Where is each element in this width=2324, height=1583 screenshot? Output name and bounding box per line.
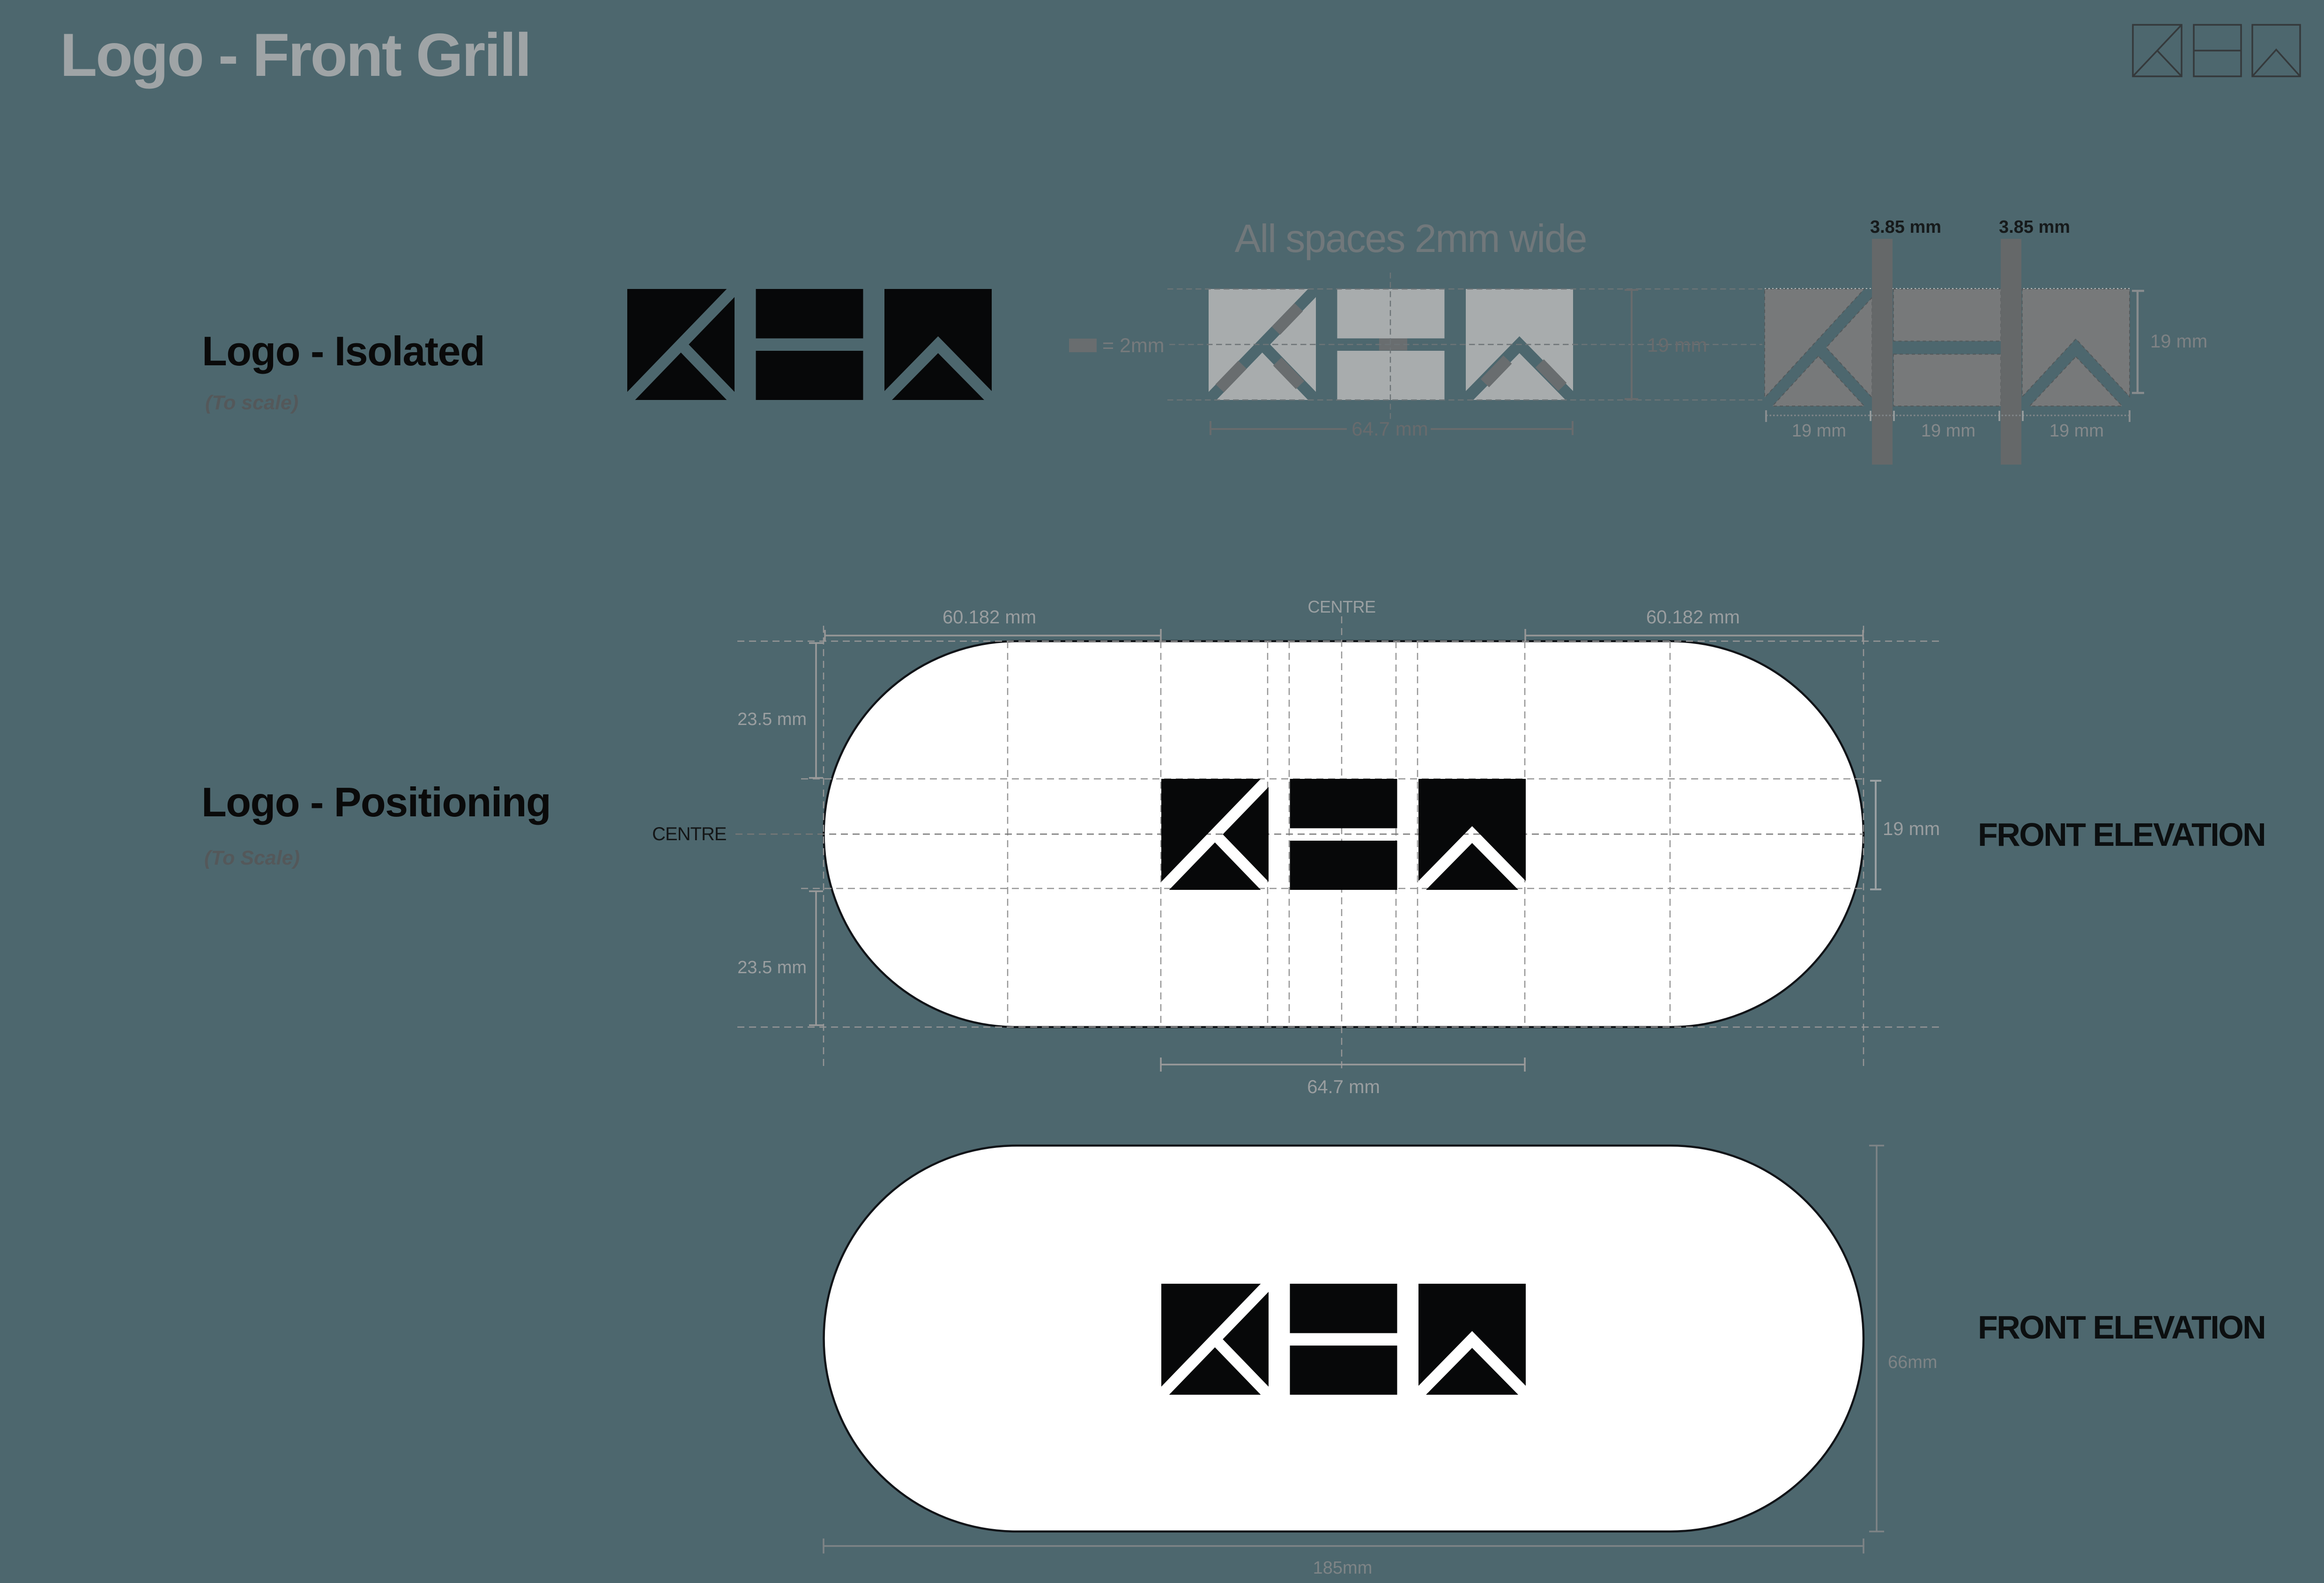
- svg-text:Logo - Isolated: Logo - Isolated: [202, 328, 484, 374]
- svg-text:19 mm: 19 mm: [1647, 334, 1707, 356]
- svg-text:19 mm: 19 mm: [1883, 819, 1940, 839]
- svg-text:66mm: 66mm: [1888, 1353, 1938, 1372]
- svg-text:23.5 mm: 23.5 mm: [737, 710, 807, 729]
- svg-text:(To Scale): (To Scale): [204, 847, 300, 869]
- svg-text:= 2mm: = 2mm: [1102, 334, 1165, 357]
- svg-text:64.7 mm: 64.7 mm: [1351, 418, 1428, 440]
- svg-text:19 mm: 19 mm: [2049, 421, 2104, 441]
- svg-text:All spaces 2mm wide: All spaces 2mm wide: [1235, 216, 1587, 260]
- svg-text:60.182 mm: 60.182 mm: [943, 607, 1036, 628]
- svg-text:64.7 mm: 64.7 mm: [1307, 1077, 1380, 1097]
- svg-text:23.5 mm: 23.5 mm: [737, 958, 807, 977]
- svg-text:Logo - Positioning: Logo - Positioning: [201, 779, 550, 825]
- svg-text:CENTRE: CENTRE: [652, 824, 726, 844]
- svg-text:Logo - Front Grill: Logo - Front Grill: [60, 21, 530, 89]
- svg-text:FRONT ELEVATION: FRONT ELEVATION: [1978, 816, 2265, 853]
- svg-text:(To scale): (To scale): [205, 392, 298, 414]
- svg-text:60.182 mm: 60.182 mm: [1646, 607, 1740, 628]
- svg-text:19 mm: 19 mm: [2150, 331, 2207, 352]
- svg-text:19 mm: 19 mm: [1921, 421, 1975, 441]
- svg-text:19 mm: 19 mm: [1792, 421, 1846, 441]
- svg-text:FRONT ELEVATION: FRONT ELEVATION: [1978, 1309, 2265, 1346]
- svg-text:3.85 mm: 3.85 mm: [1870, 217, 1941, 237]
- svg-text:CENTRE: CENTRE: [1307, 597, 1375, 616]
- svg-text:3.85 mm: 3.85 mm: [1999, 217, 2070, 237]
- svg-text:185mm: 185mm: [1313, 1558, 1373, 1578]
